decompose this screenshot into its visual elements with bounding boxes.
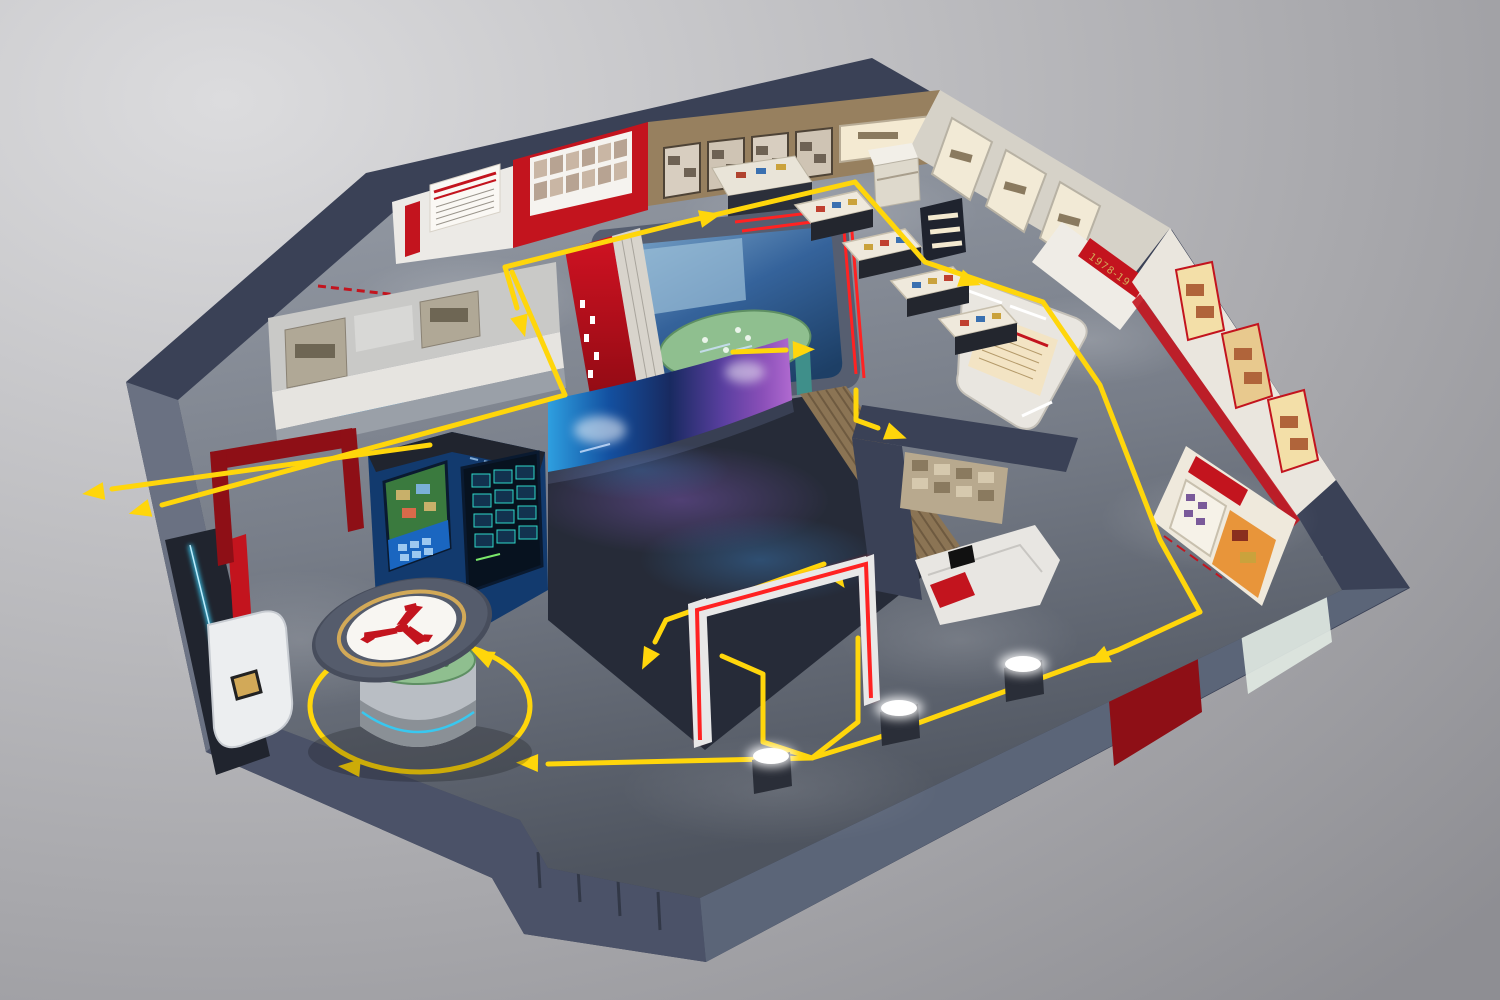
gold-guest-book	[232, 671, 261, 699]
route-dome-interior	[733, 350, 786, 352]
light-pedestal	[875, 697, 923, 746]
route-arrow	[81, 482, 105, 503]
data-dashboard-screen	[462, 452, 542, 592]
route-arrow	[126, 499, 152, 522]
light-pedestal	[747, 745, 795, 794]
red-vertical-banner	[405, 201, 420, 257]
light-pedestal	[999, 653, 1047, 702]
exhibition-render: 1978-19	[0, 0, 1500, 1000]
scene-canvas: 1978-19	[0, 0, 1500, 1000]
